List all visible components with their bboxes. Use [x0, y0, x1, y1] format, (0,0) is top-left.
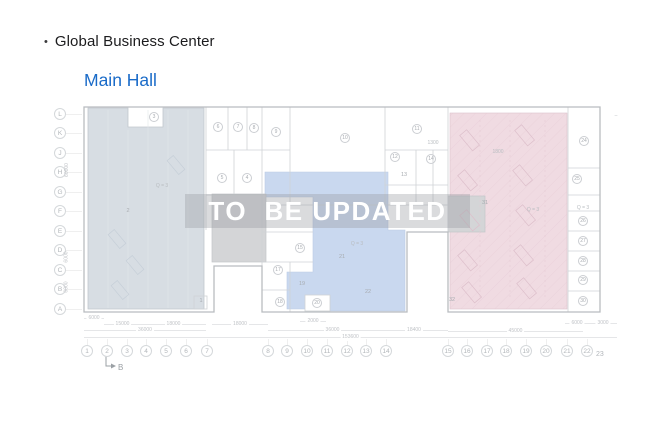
dim-label: 3000 [595, 320, 610, 327]
dim-segment: 6000 [84, 315, 104, 322]
room-label-9: 9 [271, 127, 281, 137]
axis-col-21: 21 [561, 345, 573, 357]
dim-segment: 153600 [84, 334, 617, 341]
room-label-5: 5 [217, 173, 227, 183]
axis-col-22: 22 [581, 345, 593, 357]
dim-segment: 18400 [380, 327, 448, 334]
room-label-29: 29 [578, 275, 588, 285]
axis-row-A: A [54, 303, 66, 315]
dim-segment: 3000 [589, 320, 617, 327]
room-label-4: 4 [242, 173, 252, 183]
axis-col-14: 14 [380, 345, 392, 357]
axis-col-5: 5 [160, 345, 172, 357]
axis-col-6: 6 [180, 345, 192, 357]
room-label-11: 11 [412, 124, 422, 134]
vertical-dim-label: 60000 [64, 163, 70, 177]
watermark-text: TO BE UPDATED [208, 196, 446, 227]
room-label-14: 14 [426, 154, 436, 164]
dim-label: 36000 [136, 327, 154, 334]
room-label-22: 22 [365, 289, 371, 295]
room-label-8: 8 [249, 123, 259, 133]
dim-label: 18400 [405, 327, 423, 334]
room-label-30: 30 [578, 296, 588, 306]
plan-note: – [615, 113, 618, 119]
room-label-21: 21 [339, 254, 345, 260]
room-label-26: 26 [578, 216, 588, 226]
axis-row-J: J [54, 147, 66, 159]
row-grid-line [66, 309, 82, 310]
axis-row-K: K [54, 127, 66, 139]
plan-note: Q = 3 [577, 205, 589, 211]
axis-col-4: 4 [140, 345, 152, 357]
axis-col-1: 1 [81, 345, 93, 357]
room-label-28: 28 [578, 256, 588, 266]
dim-label: 2000 [305, 318, 320, 325]
axis-col-13: 13 [360, 345, 372, 357]
vertical-dim-label: 6000 [64, 281, 70, 292]
axis-col-7: 7 [201, 345, 213, 357]
dim-segment: 18000 [212, 321, 268, 328]
axis-col-2: 2 [101, 345, 113, 357]
dim-label: 153600 [340, 334, 361, 341]
axis-col-23: 23 [596, 351, 604, 358]
row-grid-line [66, 192, 82, 193]
axis-col-19: 19 [520, 345, 532, 357]
room-label-31: 31 [482, 200, 488, 206]
room-label-10: 10 [340, 133, 350, 143]
axis-row-C: C [54, 264, 66, 276]
room-label-19: 19 [299, 281, 305, 287]
room-label-32: 32 [449, 297, 455, 303]
dim-segment: 6000 [565, 320, 589, 327]
room-label-13: 13 [401, 172, 407, 178]
axis-col-18: 18 [500, 345, 512, 357]
room-label-15: 15 [295, 243, 305, 253]
room-label-18: 18 [275, 297, 285, 307]
axis-col-3: 3 [121, 345, 133, 357]
plan-note: Q = 3 [156, 183, 168, 189]
axis-row-E: E [54, 225, 66, 237]
row-grid-line [66, 270, 82, 271]
watermark-band: TO BE UPDATED [185, 194, 470, 228]
axis-col-11: 11 [321, 345, 333, 357]
room-label-12: 12 [390, 152, 400, 162]
room-label-24: 24 [579, 136, 589, 146]
dim-segment: 2000 [300, 318, 326, 325]
dim-label: 6000 [569, 320, 584, 327]
row-grid-line [66, 231, 82, 232]
row-grid-line [66, 114, 82, 115]
dim-label: 6000 [86, 315, 101, 322]
room-label-3: 3 [149, 112, 159, 122]
dim-segment: 36000 [84, 327, 206, 334]
axis-row-G: G [54, 186, 66, 198]
dim-segment: 36000 [268, 327, 397, 334]
axis-col-15: 15 [442, 345, 454, 357]
plan-note: Q = 3 [351, 241, 363, 247]
room-label-27: 27 [578, 236, 588, 246]
axis-col-20: 20 [540, 345, 552, 357]
room-label-17: 17 [273, 265, 283, 275]
row-grid-line [66, 211, 82, 212]
row-grid-line [66, 133, 82, 134]
axis-row-F: F [54, 205, 66, 217]
axis-col-17: 17 [481, 345, 493, 357]
vertical-dim-label: 6000 [64, 251, 70, 262]
plan-note: 1800 [492, 149, 503, 155]
plan-note: Q = 3 [527, 207, 539, 213]
page: • Global Business Center Main Hall [0, 0, 660, 440]
axis-col-12: 12 [341, 345, 353, 357]
room-label-6: 6 [213, 122, 223, 132]
room-label-1: 1 [199, 298, 202, 304]
floor-plan: LKJHGFEDCBA12345678910111213141516171819… [0, 0, 660, 440]
axis-col-8: 8 [262, 345, 274, 357]
room-label-25: 25 [572, 174, 582, 184]
section-marker-label: B [118, 363, 123, 372]
room-label-2: 2 [126, 208, 129, 214]
plan-note: 1300 [427, 140, 438, 146]
axis-col-10: 10 [301, 345, 313, 357]
axis-row-L: L [54, 108, 66, 120]
axis-col-16: 16 [461, 345, 473, 357]
dim-label: 36000 [324, 327, 342, 334]
axis-col-9: 9 [281, 345, 293, 357]
room-label-20: 20 [312, 298, 322, 308]
row-grid-line [66, 153, 82, 154]
dim-label: 18000 [231, 321, 249, 328]
room-label-7: 7 [233, 122, 243, 132]
